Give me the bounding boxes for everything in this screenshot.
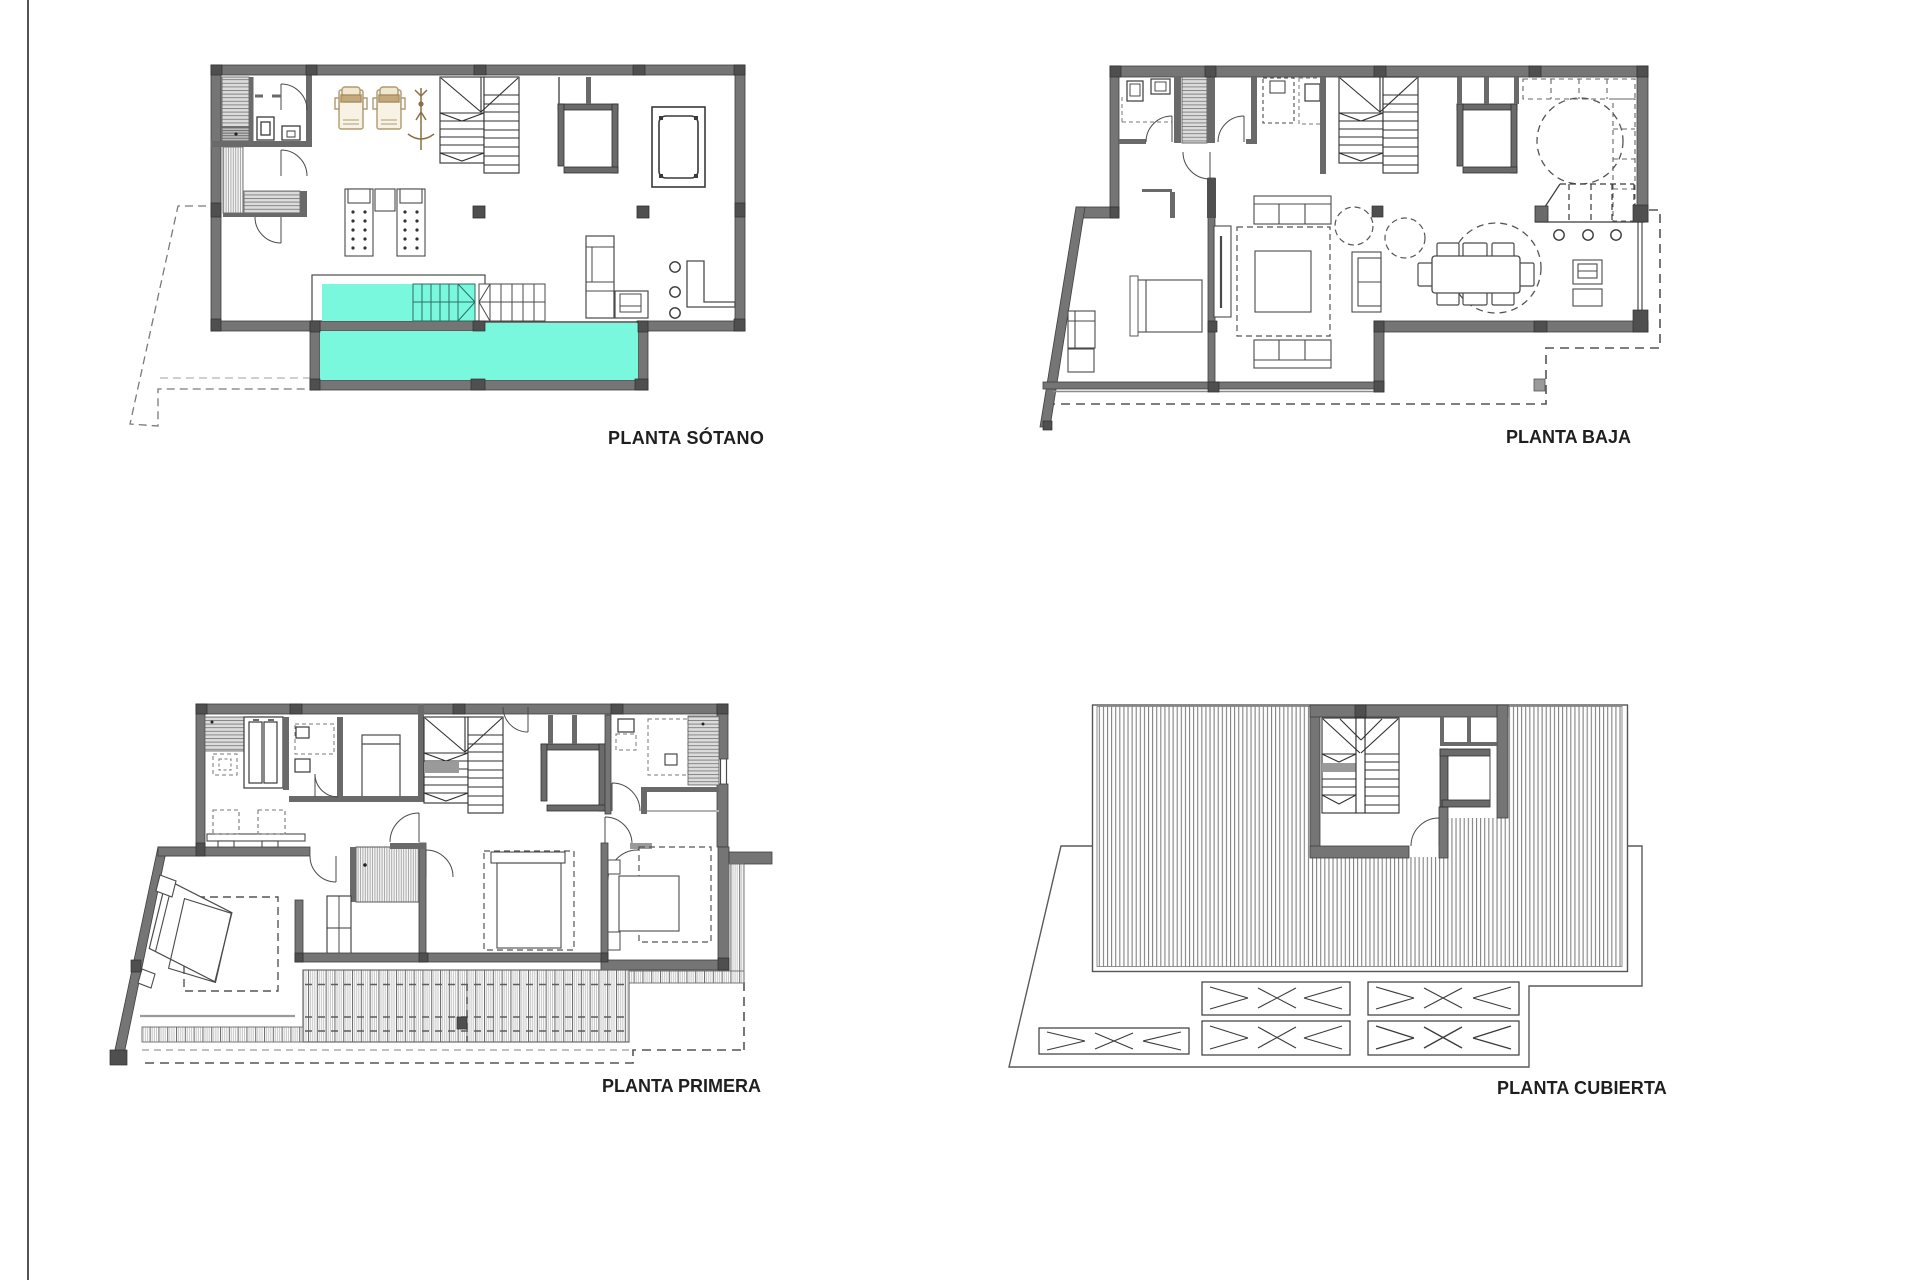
svg-text:PLANTA CUBIERTA: PLANTA CUBIERTA [1497,1078,1667,1098]
svg-text:PLANTA PRIMERA: PLANTA PRIMERA [602,1076,761,1096]
svg-text:PLANTA BAJA: PLANTA BAJA [1506,427,1631,447]
svg-text:PLANTA SÓTANO: PLANTA SÓTANO [608,427,764,448]
